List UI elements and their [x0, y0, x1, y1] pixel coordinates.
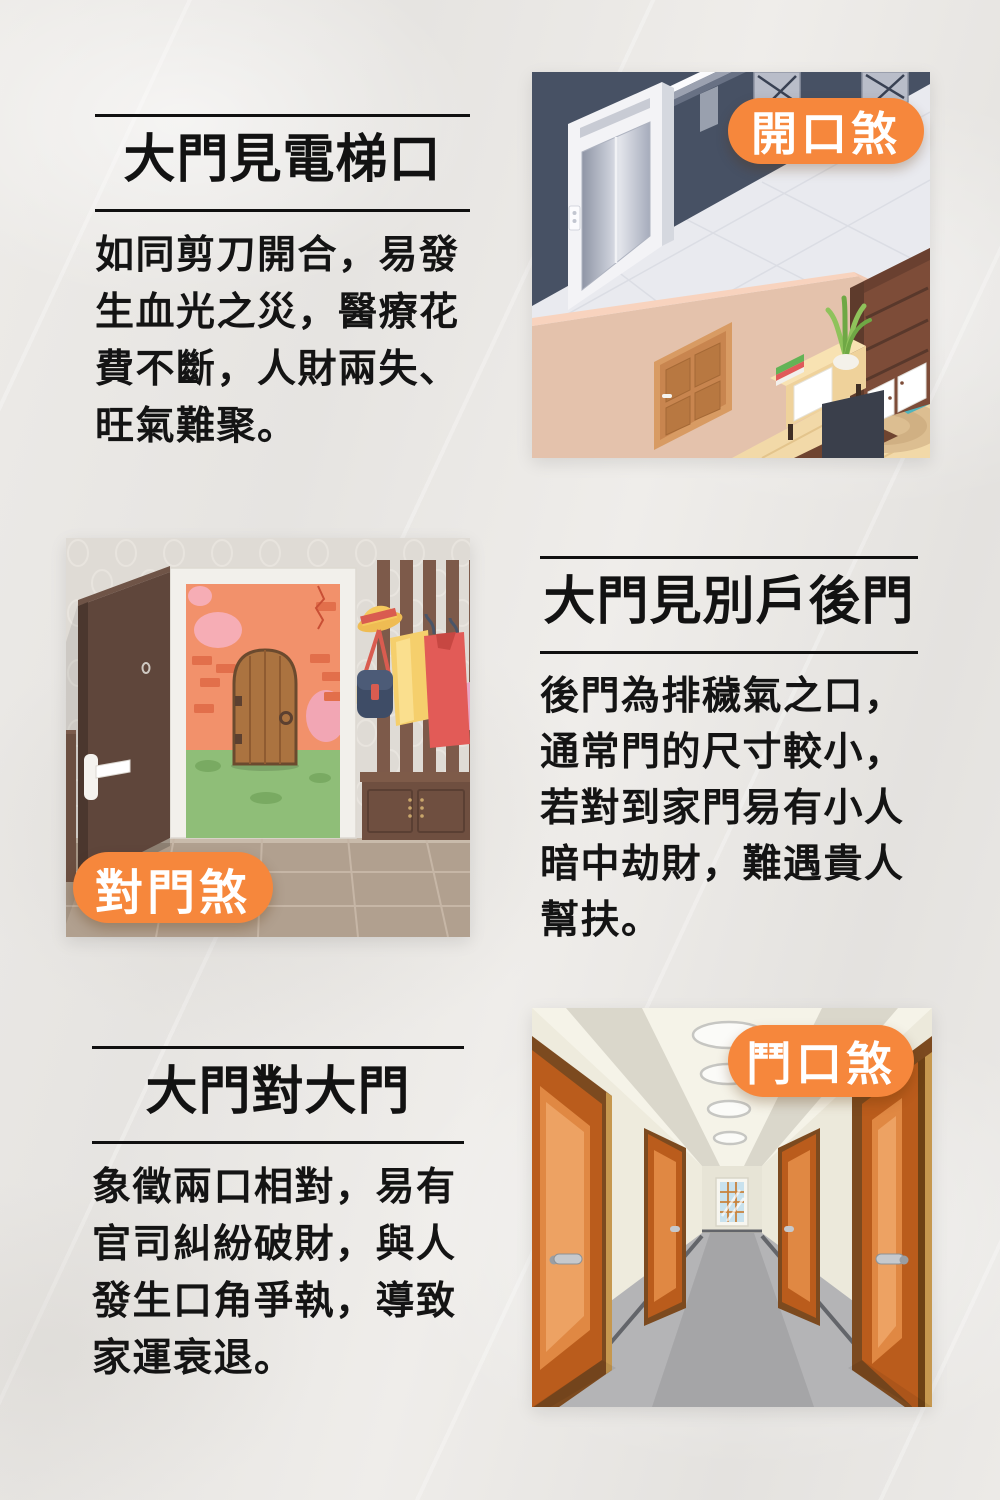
wall-sign-plate	[700, 86, 718, 132]
left-far-door	[644, 1128, 686, 1326]
section-body: 如同剪刀開合，易發 生血光之災，醫療花 費不斷，人財兩失、 旺氣難聚。	[95, 227, 470, 455]
open-front-door	[78, 566, 170, 892]
right-far-door	[778, 1128, 820, 1326]
arched-back-door	[234, 650, 296, 764]
infographic-canvas: 大門見電梯口 如同剪刀開合，易發 生血光之災，醫療花 費不斷，人財兩失、 旺氣難…	[0, 0, 1000, 1500]
hazard-badge: 開口煞	[728, 98, 924, 164]
left-near-door	[532, 1036, 612, 1407]
section-backdoor-text: 大門見別戶後門 後門為排穢氣之口， 通常門的尺寸較小， 若對到家門易有小人 暗中…	[540, 556, 918, 949]
neighbor-doorway-scene	[186, 584, 346, 838]
hazard-badge: 鬥口煞	[728, 1025, 914, 1097]
shoe-cabinet	[360, 772, 470, 840]
section-door-to-door-text: 大門對大門 象徵兩口相對，易有 官司糾紛破財，與人 發生口角爭執，導致 家運衰退…	[92, 1046, 464, 1387]
section-elevator-text: 大門見電梯口 如同剪刀開合，易發 生血光之災，醫療花 費不斷，人財兩失、 旺氣難…	[95, 114, 470, 455]
section-body: 後門為排穢氣之口， 通常門的尺寸較小， 若對到家門易有小人 暗中劫財，難遇貴人 …	[540, 669, 918, 949]
end-window	[716, 1178, 748, 1226]
section-title: 大門對大門	[92, 1046, 464, 1144]
hazard-badge: 對門煞	[73, 852, 273, 923]
elevator-lobby-illustration: 開口煞	[532, 72, 930, 458]
section-body: 象徵兩口相對，易有 官司糾紛破財，與人 發生口角爭執，導致 家運衰退。	[92, 1159, 464, 1387]
corridor-illustration: 鬥口煞	[532, 1008, 932, 1407]
section-title: 大門見電梯口	[95, 114, 470, 212]
section-title: 大門見別戶後門	[540, 556, 918, 654]
facing-doors-illustration: 對門煞	[66, 538, 470, 937]
